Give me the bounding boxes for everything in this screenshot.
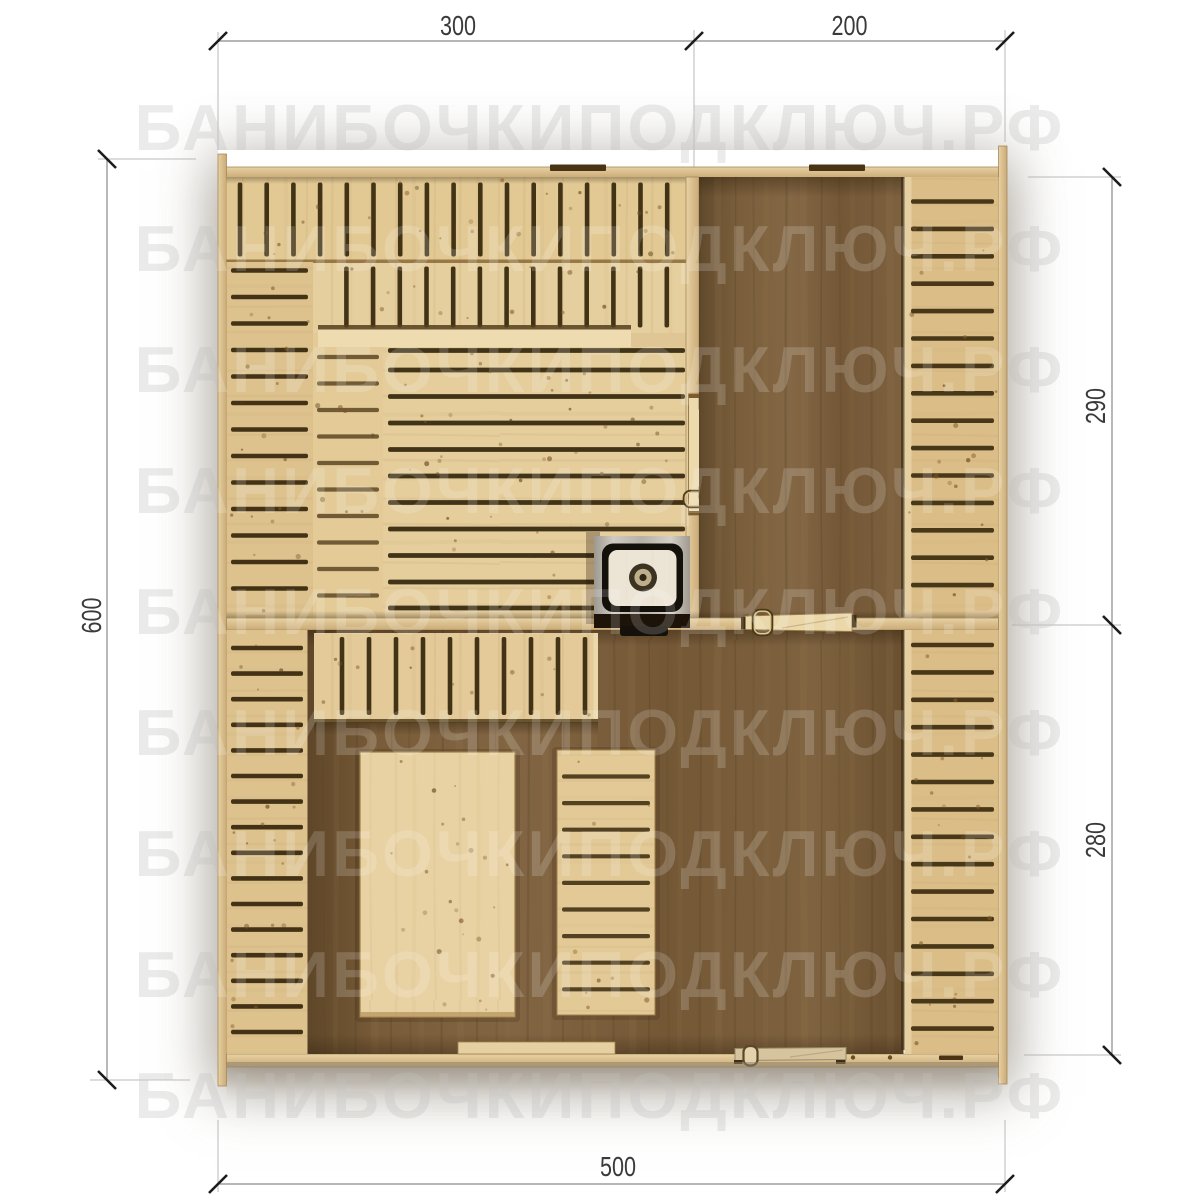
svg-text:290: 290 <box>1080 388 1111 424</box>
svg-text:200: 200 <box>832 10 868 41</box>
svg-text:280: 280 <box>1080 822 1111 858</box>
svg-text:600: 600 <box>76 598 107 634</box>
svg-text:500: 500 <box>600 1151 636 1182</box>
svg-text:300: 300 <box>440 10 476 41</box>
